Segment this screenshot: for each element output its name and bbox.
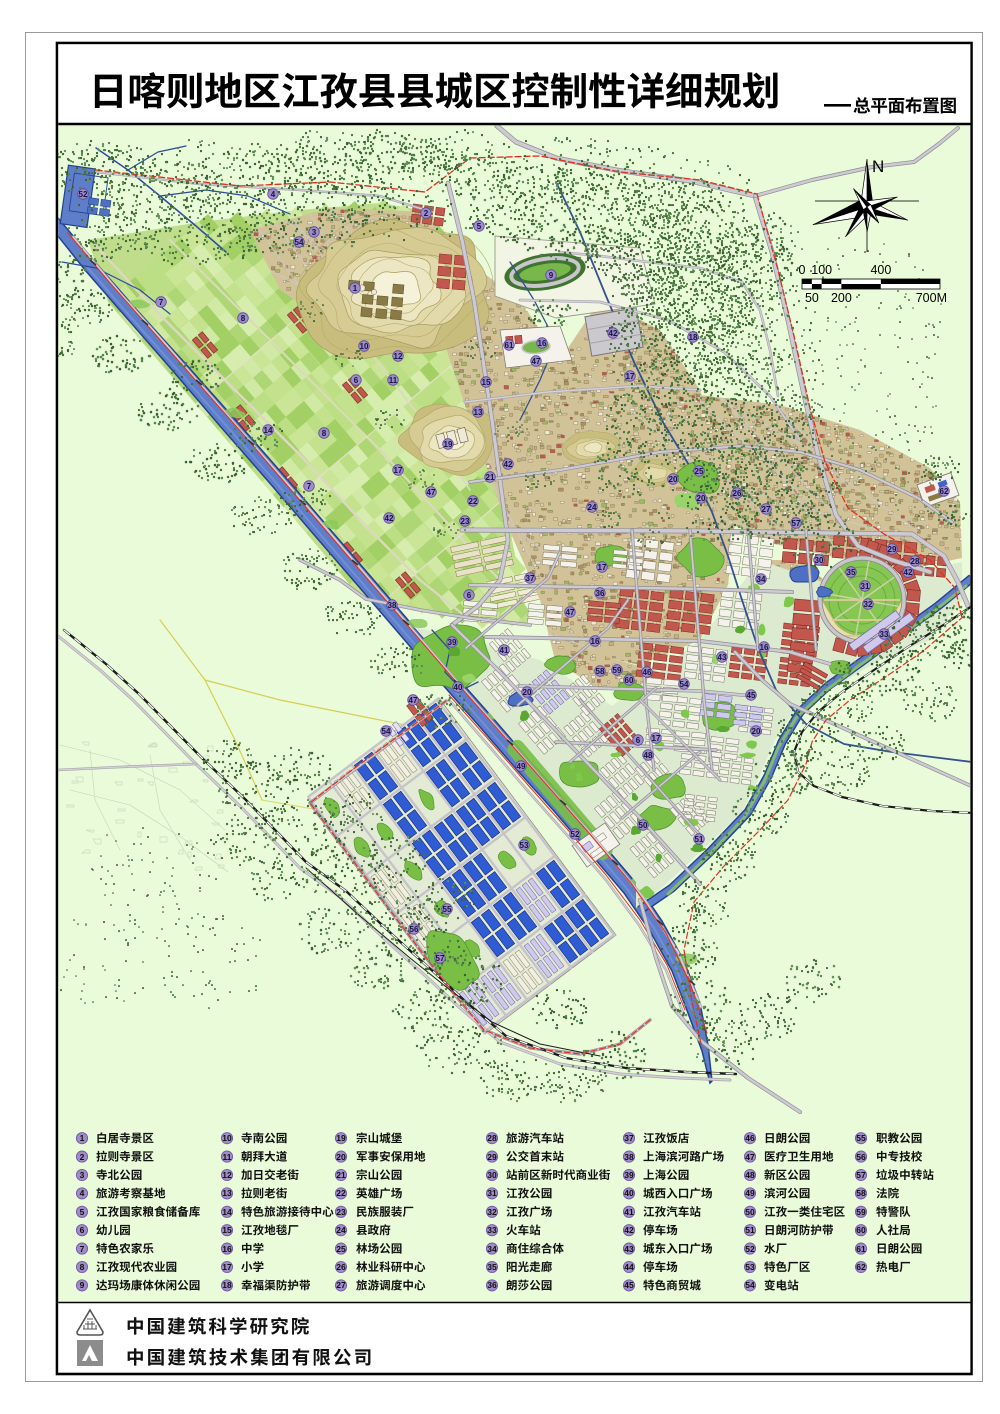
svg-text:100: 100	[811, 263, 832, 277]
svg-text:29: 29	[487, 1152, 497, 1162]
svg-text:10: 10	[360, 342, 369, 351]
svg-text:56: 56	[856, 1152, 866, 1162]
svg-text:27: 27	[336, 1280, 346, 1290]
svg-text:39: 39	[624, 1170, 634, 1180]
svg-text:15: 15	[222, 1225, 232, 1235]
svg-text:7: 7	[80, 1244, 85, 1254]
svg-text:44: 44	[624, 1262, 634, 1272]
svg-text:60: 60	[856, 1225, 866, 1235]
svg-text:45: 45	[624, 1280, 634, 1290]
svg-text:31: 31	[487, 1188, 497, 1198]
svg-text:0: 0	[799, 263, 806, 277]
svg-text:31: 31	[861, 582, 870, 591]
svg-text:3: 3	[80, 1170, 85, 1180]
svg-text:16: 16	[222, 1244, 232, 1254]
svg-text:16: 16	[538, 339, 547, 348]
svg-text:2: 2	[80, 1152, 85, 1162]
svg-text:14: 14	[264, 426, 273, 435]
svg-text:5: 5	[477, 222, 482, 231]
svg-text:54: 54	[745, 1280, 755, 1290]
svg-text:29: 29	[888, 545, 897, 554]
svg-text:33: 33	[880, 630, 889, 639]
svg-text:33: 33	[487, 1225, 497, 1235]
svg-text:16: 16	[591, 637, 600, 646]
svg-text:2: 2	[424, 209, 429, 218]
svg-text:57: 57	[436, 954, 445, 963]
svg-text:25: 25	[695, 467, 704, 476]
svg-text:18: 18	[222, 1280, 232, 1290]
svg-text:43: 43	[718, 653, 727, 662]
svg-text:60: 60	[625, 676, 634, 685]
svg-text:49: 49	[745, 1188, 755, 1198]
svg-text:12: 12	[394, 352, 403, 361]
svg-text:7: 7	[307, 482, 312, 491]
svg-text:30: 30	[815, 556, 824, 565]
svg-text:59: 59	[613, 666, 622, 675]
svg-text:47: 47	[409, 696, 418, 705]
svg-text:42: 42	[609, 329, 618, 338]
svg-text:6: 6	[80, 1225, 85, 1235]
svg-text:21: 21	[486, 473, 495, 482]
svg-text:14: 14	[222, 1207, 232, 1217]
svg-text:46: 46	[643, 668, 652, 677]
svg-text:27: 27	[762, 505, 771, 514]
svg-text:57: 57	[856, 1170, 866, 1180]
svg-text:9: 9	[80, 1280, 85, 1290]
svg-text:20: 20	[336, 1152, 346, 1162]
svg-text:40: 40	[624, 1188, 634, 1198]
svg-text:12: 12	[222, 1170, 232, 1180]
svg-text:50: 50	[805, 291, 819, 305]
svg-text:58: 58	[856, 1188, 866, 1198]
svg-text:42: 42	[385, 514, 394, 523]
svg-text:13: 13	[474, 408, 483, 417]
svg-text:6: 6	[636, 736, 641, 745]
svg-text:17: 17	[626, 372, 635, 381]
svg-text:3: 3	[312, 228, 317, 237]
svg-text:30: 30	[487, 1170, 497, 1180]
svg-text:51: 51	[695, 835, 704, 844]
svg-text:47: 47	[566, 608, 575, 617]
svg-text:50: 50	[745, 1207, 755, 1217]
svg-text:18: 18	[689, 333, 698, 342]
svg-text:6: 6	[354, 376, 359, 385]
svg-text:8: 8	[241, 314, 246, 323]
svg-text:48: 48	[644, 751, 653, 760]
svg-text:47: 47	[427, 488, 436, 497]
svg-text:56: 56	[410, 925, 419, 934]
svg-text:10: 10	[222, 1133, 232, 1143]
svg-text:36: 36	[596, 589, 605, 598]
svg-text:52: 52	[745, 1244, 755, 1254]
svg-text:28: 28	[911, 557, 920, 566]
svg-text:17: 17	[394, 466, 403, 475]
svg-text:200: 200	[831, 291, 852, 305]
svg-text:51: 51	[745, 1225, 755, 1235]
svg-text:32: 32	[487, 1207, 497, 1217]
svg-text:21: 21	[336, 1170, 346, 1180]
svg-text:4: 4	[271, 190, 276, 199]
svg-text:41: 41	[624, 1207, 634, 1217]
svg-text:19: 19	[444, 440, 453, 449]
svg-text:15: 15	[482, 378, 491, 387]
svg-text:37: 37	[624, 1133, 634, 1143]
svg-text:22: 22	[469, 497, 478, 506]
svg-text:45: 45	[747, 691, 756, 700]
svg-text:38: 38	[624, 1152, 634, 1162]
svg-text:35: 35	[847, 568, 856, 577]
svg-text:24: 24	[588, 503, 597, 512]
svg-text:8: 8	[80, 1262, 85, 1272]
svg-text:54: 54	[295, 238, 304, 247]
svg-text:17: 17	[222, 1262, 232, 1272]
svg-text:46: 46	[745, 1133, 755, 1143]
svg-text:35: 35	[487, 1262, 497, 1272]
svg-text:43: 43	[624, 1244, 634, 1254]
svg-text:39: 39	[448, 638, 457, 647]
svg-text:40: 40	[454, 683, 463, 692]
svg-text:20: 20	[669, 475, 678, 484]
svg-text:25: 25	[336, 1244, 346, 1254]
svg-text:7: 7	[159, 298, 164, 307]
svg-text:58: 58	[596, 667, 605, 676]
svg-text:52: 52	[571, 830, 580, 839]
svg-text:32: 32	[864, 600, 873, 609]
svg-text:17: 17	[652, 734, 661, 743]
svg-text:20: 20	[523, 688, 532, 697]
svg-text:23: 23	[461, 517, 470, 526]
svg-text:700M: 700M	[916, 291, 947, 305]
svg-text:1: 1	[353, 284, 358, 293]
svg-text:6: 6	[467, 591, 472, 600]
svg-text:42: 42	[624, 1225, 634, 1235]
svg-text:38: 38	[388, 601, 397, 610]
svg-text:13: 13	[222, 1188, 232, 1198]
svg-text:61: 61	[505, 341, 514, 350]
svg-text:24: 24	[336, 1225, 346, 1235]
svg-text:N: N	[872, 157, 884, 176]
svg-text:59: 59	[856, 1207, 866, 1217]
svg-text:62: 62	[940, 487, 949, 496]
svg-text:11: 11	[223, 1152, 232, 1162]
svg-text:26: 26	[336, 1262, 346, 1272]
svg-text:42: 42	[504, 460, 513, 469]
svg-text:1: 1	[80, 1133, 85, 1143]
svg-text:37: 37	[526, 574, 535, 583]
svg-text:36: 36	[487, 1280, 497, 1290]
svg-text:42: 42	[904, 568, 913, 577]
svg-text:48: 48	[745, 1170, 755, 1180]
svg-text:17: 17	[598, 563, 607, 572]
svg-text:52: 52	[79, 190, 88, 199]
svg-text:8: 8	[322, 429, 327, 438]
svg-text:61: 61	[856, 1244, 866, 1254]
svg-text:20: 20	[697, 494, 706, 503]
svg-text:9: 9	[549, 271, 554, 280]
svg-text:5: 5	[80, 1207, 85, 1217]
svg-text:26: 26	[733, 489, 742, 498]
svg-text:19: 19	[336, 1133, 346, 1143]
svg-text:4: 4	[80, 1188, 85, 1198]
svg-text:400: 400	[870, 263, 891, 277]
svg-text:54: 54	[382, 727, 391, 736]
svg-text:53: 53	[745, 1262, 755, 1272]
svg-text:11: 11	[389, 376, 398, 385]
svg-text:22: 22	[336, 1188, 346, 1198]
svg-text:55: 55	[856, 1133, 866, 1143]
svg-text:53: 53	[520, 841, 529, 850]
svg-text:16: 16	[760, 643, 769, 652]
svg-text:49: 49	[517, 762, 526, 771]
svg-text:54: 54	[680, 680, 689, 689]
svg-text:34: 34	[487, 1244, 497, 1254]
svg-text:62: 62	[856, 1262, 866, 1272]
svg-text:47: 47	[532, 357, 541, 366]
svg-text:28: 28	[487, 1133, 497, 1143]
svg-text:34: 34	[757, 575, 766, 584]
svg-text:55: 55	[443, 905, 452, 914]
svg-text:20: 20	[752, 727, 761, 736]
svg-text:47: 47	[745, 1152, 755, 1162]
svg-text:23: 23	[336, 1207, 346, 1217]
svg-text:50: 50	[639, 821, 648, 830]
svg-text:57: 57	[792, 519, 801, 528]
svg-text:41: 41	[500, 646, 509, 655]
